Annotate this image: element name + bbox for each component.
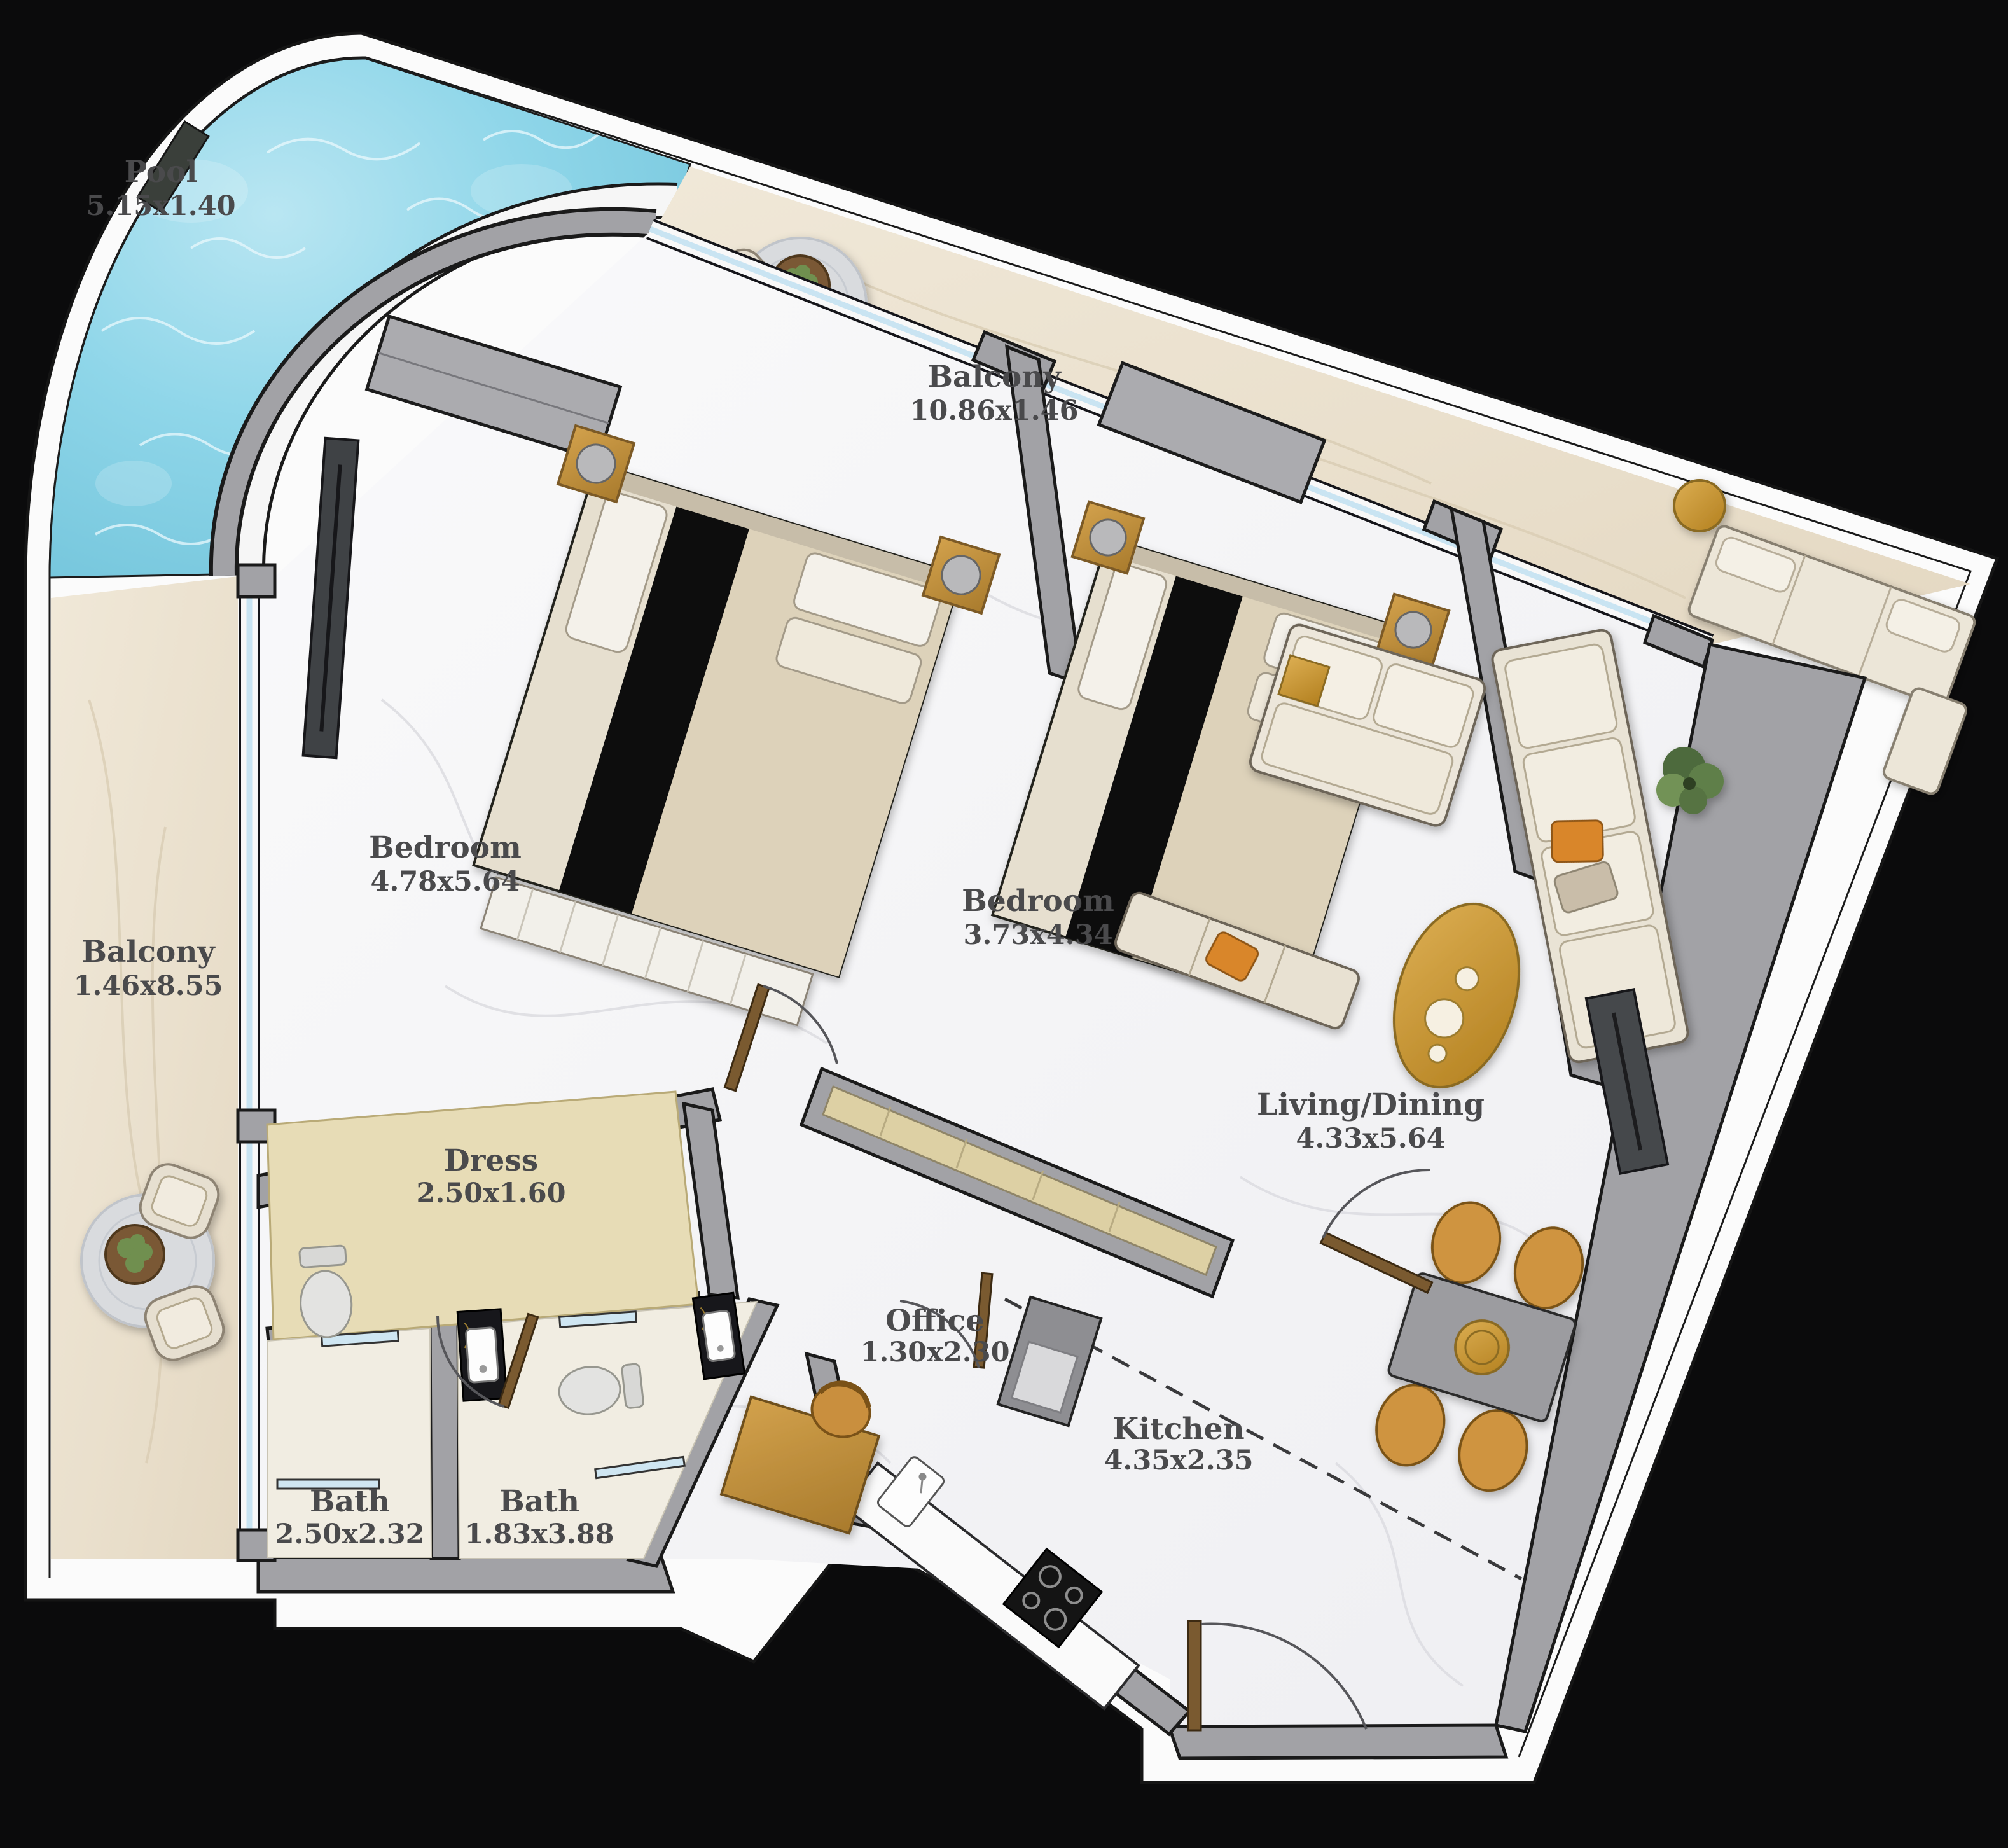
entrance-door-icon: [1188, 1621, 1201, 1730]
label-balcony-top: Balcony: [927, 359, 1062, 394]
wall-stub: [238, 565, 275, 597]
wall-bath-bottom: [258, 1557, 673, 1592]
balcony-left-floor: [51, 576, 238, 1559]
label-office: Office: [885, 1303, 985, 1338]
label-bedroom-2: Bedroom: [962, 884, 1114, 919]
label-kitchen: Kitchen: [1112, 1412, 1244, 1447]
floor-plan-svg: Pool 5.15x1.40 Balcony 10.86x1.46 Balcon…: [0, 0, 2008, 1848]
vanity-icon: [457, 1309, 507, 1401]
wall-entrance-bottom: [1169, 1725, 1506, 1758]
label-bath-1-dims: 2.50x2.32: [275, 1518, 424, 1550]
label-bath-2-dims: 1.83x3.88: [464, 1518, 614, 1550]
label-bath-1: Bath: [310, 1484, 390, 1519]
label-living-dining: Living/Dining: [1257, 1087, 1485, 1122]
label-office-dims: 1.30x2.30: [860, 1337, 1009, 1368]
label-pool: Pool: [125, 155, 198, 190]
wall-bath-divider: [430, 1319, 459, 1559]
label-balcony-top-dims: 10.86x1.46: [910, 395, 1078, 427]
label-dress: Dress: [444, 1143, 538, 1178]
label-kitchen-dims: 4.35x2.35: [1104, 1445, 1253, 1476]
label-pool-dims: 5.15x1.40: [86, 190, 235, 222]
label-bath-2: Bath: [499, 1484, 579, 1519]
floor-plan-page: Pool 5.15x1.40 Balcony 10.86x1.46 Balcon…: [0, 0, 2008, 1848]
label-bedroom-2-dims: 3.73x4.34: [963, 919, 1112, 951]
label-balcony-left: Balcony: [81, 934, 216, 969]
label-balcony-left-dims: 1.46x8.55: [73, 970, 223, 1002]
label-dress-dims: 2.50x1.60: [416, 1178, 565, 1209]
label-bedroom-1-dims: 4.78x5.64: [370, 866, 520, 898]
label-bedroom-1: Bedroom: [369, 830, 522, 865]
label-living-dining-dims: 4.33x5.64: [1296, 1123, 1445, 1155]
